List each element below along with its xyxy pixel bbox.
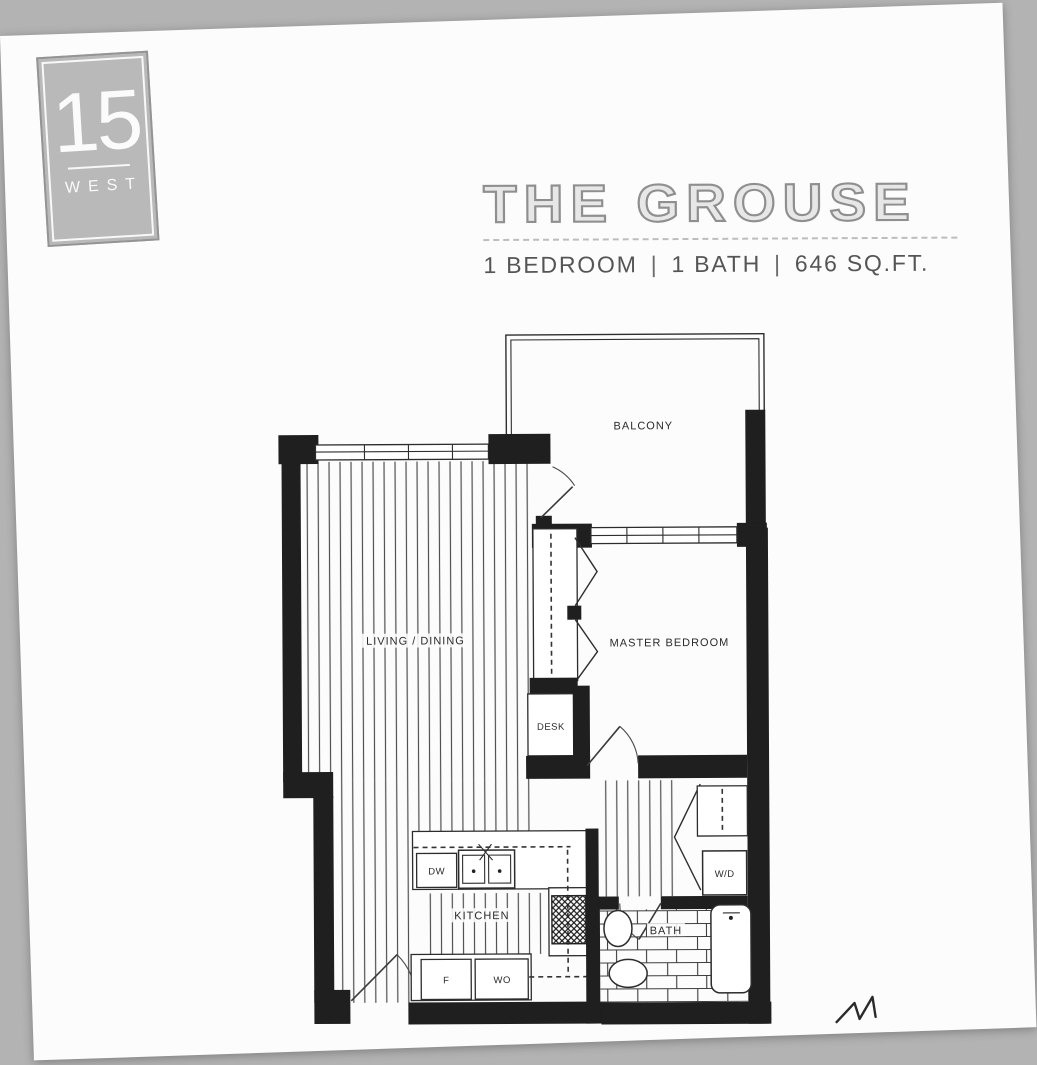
closet-area <box>533 529 578 681</box>
wall-oven-label: WO <box>494 975 511 986</box>
bath-bottom-wall <box>601 1002 771 1025</box>
floor-plan-drawing: BALCONY <box>268 325 792 1038</box>
living-dining-label: LIVING / DINING <box>366 635 465 648</box>
bedroom-bottom-wall <box>638 755 747 779</box>
bifold-door-upper <box>575 538 597 606</box>
bath-sink <box>604 910 632 946</box>
bath-left-wall <box>586 897 601 1024</box>
pen-mark-icon <box>832 980 892 1025</box>
unit-specs: 1 BEDROOM|1 BATH|646 SQ.FT. <box>483 249 1008 279</box>
kitchen-hall-wall <box>585 829 598 899</box>
stove <box>552 896 586 944</box>
closet <box>529 529 598 694</box>
closet-bottom-wall <box>530 678 578 694</box>
dishwasher-label: DW <box>428 866 445 877</box>
desk-nook: DESK <box>526 686 590 779</box>
bathtub <box>711 905 751 993</box>
title-underline <box>483 237 957 241</box>
closet-divider <box>567 606 581 620</box>
spec-baths: 1 BATH <box>671 251 761 277</box>
top-wall-right-block <box>488 434 550 464</box>
bedroom-window <box>591 527 737 544</box>
bath-label: BATH <box>650 925 683 937</box>
building-logo: 15 WEST <box>36 51 159 247</box>
desk-right-wall <box>573 686 590 766</box>
bifold-door-lower <box>575 620 597 682</box>
left-wall-upper <box>281 437 302 782</box>
scanned-page: 15 WEST THE GROUSE 1 BEDROOM|1 BATH|646 … <box>0 3 1036 1061</box>
balcony-door-swing <box>553 467 575 486</box>
logo-name: WEST <box>46 174 155 199</box>
desk-label: DESK <box>537 722 565 733</box>
page-title: THE GROUSE <box>483 175 1008 231</box>
spec-separator: | <box>774 251 782 277</box>
balcony-right-wall <box>745 410 766 528</box>
living-window <box>315 444 488 460</box>
logo-number: 15 <box>40 79 153 165</box>
wall-jog <box>283 772 333 798</box>
bathroom: BATH <box>586 896 772 1025</box>
laundry-closet: W/D <box>674 784 748 895</box>
spec-separator: | <box>651 251 659 277</box>
desk-bottom-wall <box>526 756 590 779</box>
entry-corner-block <box>314 990 350 1024</box>
left-wall-lower <box>313 796 334 1003</box>
spec-area: 646 SQ.FT. <box>795 250 929 277</box>
bedroom-door-leaf <box>587 726 620 765</box>
floor-plan: BALCONY <box>268 325 792 1038</box>
washer-dryer-label: W/D <box>715 869 735 880</box>
toilet <box>609 959 647 987</box>
bedroom-door <box>587 726 638 765</box>
bottom-wall <box>408 1002 606 1025</box>
kitchen-sink <box>459 844 515 888</box>
spec-bedrooms: 1 BEDROOM <box>483 251 637 278</box>
balcony-label: BALCONY <box>614 420 674 432</box>
balcony-door-leaf <box>541 487 573 518</box>
fridge-label: F <box>443 975 449 986</box>
master-bedroom-label: MASTER BEDROOM <box>610 637 730 650</box>
kitchen-label: KITCHEN <box>454 910 509 922</box>
bedroom-door-swing <box>620 726 638 763</box>
header: THE GROUSE 1 BEDROOM|1 BATH|646 SQ.FT. <box>483 175 1009 279</box>
